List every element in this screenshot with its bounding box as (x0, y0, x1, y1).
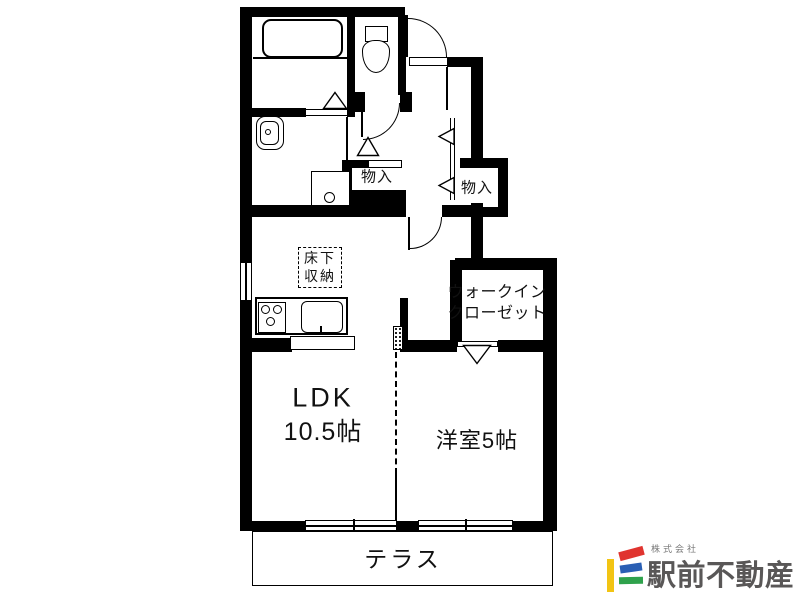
floor-plan: LDK 10.5帖 洋室5帖 ウォークイン クローゼット テラス 物入 物入 床… (0, 0, 800, 600)
wall (498, 340, 557, 352)
ldk-door-swing-arc (410, 217, 442, 249)
pillar-hatch (393, 326, 403, 350)
bath-door-triangle (322, 91, 348, 110)
entrance-floor-line (446, 67, 448, 110)
hall-closet-door-triangle (356, 136, 380, 157)
stove-burner (273, 305, 282, 314)
underfloor-storage-line1: 床下 (304, 249, 336, 267)
walk-in-closet-label: ウォークイン クローゼット (447, 282, 546, 324)
logo-bar-green (619, 577, 643, 584)
logo-bar-yellow (607, 559, 614, 592)
entrance-door-swing-arc (408, 18, 447, 57)
wall (513, 521, 557, 531)
storage-hall-label: 物入 (361, 166, 393, 187)
window-glass-line (306, 525, 396, 527)
window-glass-line (245, 263, 247, 300)
wall (244, 338, 292, 352)
underfloor-storage-label: 床下 収納 (304, 249, 336, 285)
bathtub (262, 19, 343, 58)
counter-edge (290, 336, 355, 350)
washroom-boundary-line (346, 117, 348, 162)
closet-fold-triangle-lower (438, 176, 455, 195)
toilet-door-swing-arc (363, 103, 400, 140)
stove-burner (266, 317, 275, 326)
wall (240, 300, 252, 521)
entrance-step (409, 57, 448, 66)
wall (398, 15, 406, 95)
window-ldk-south (305, 520, 397, 531)
underfloor-storage-line2: 収納 (304, 267, 336, 285)
logo-bar-blue (620, 563, 643, 574)
walk-in-closet-line2: クローゼット (447, 303, 546, 324)
wall (240, 7, 252, 263)
bath-door-threshold (305, 109, 348, 116)
toilet-bowl (362, 40, 390, 73)
storage-mid-label: 物入 (461, 177, 493, 198)
wall (455, 207, 508, 217)
wall (352, 190, 406, 217)
closet-fold-triangle-upper (438, 127, 455, 146)
wall (397, 521, 418, 531)
kitchen-faucet (320, 326, 322, 335)
wall (240, 521, 305, 531)
wic-door-triangle (462, 344, 492, 365)
wall (455, 258, 557, 270)
window-left-wall (240, 262, 252, 301)
wall (240, 7, 405, 17)
window-bedroom-south (418, 520, 513, 531)
logo-company-name: 駅前不動産 (647, 552, 795, 594)
room-partition-dashed (395, 352, 397, 474)
wall (240, 205, 362, 217)
room-partition-solid (395, 474, 397, 521)
walk-in-closet-line1: ウォークイン (447, 282, 546, 303)
washer-drain (324, 192, 335, 203)
terrace-label: テラス (364, 540, 442, 574)
ldk-size-label: 10.5帖 (284, 412, 363, 448)
vanity-sink-drain (265, 129, 271, 135)
wall (252, 108, 306, 117)
company-logo: 株式会社 駅前不動産 (600, 540, 795, 595)
wall (402, 340, 457, 352)
ldk-label: LDK (292, 383, 354, 414)
wall (471, 57, 483, 160)
western-room-label: 洋室5帖 (436, 423, 518, 455)
stove-burner (261, 305, 270, 314)
wall (400, 92, 412, 112)
logo-bar-red (618, 546, 644, 561)
kitchen-sink (301, 301, 343, 333)
